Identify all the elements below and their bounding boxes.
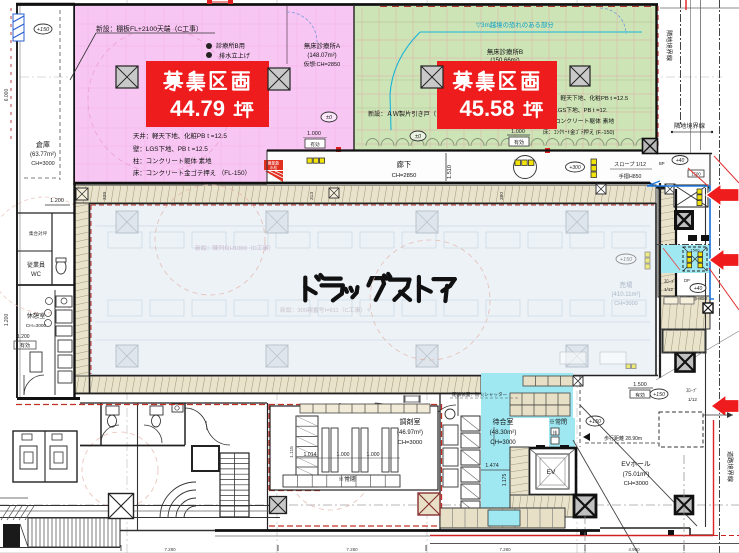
svg-text:+300: +300 [569,165,580,171]
svg-text:天井：軽天下地、化粧PB t =12.5: 天井：軽天下地、化粧PB t =12.5 [133,131,227,140]
svg-text:CH=2850: CH=2850 [392,173,417,179]
svg-text:1.000: 1.000 [367,452,380,458]
svg-text:新設：300親番号I=911（C工事）＋: 新設：300親番号I=911（C工事）＋ [280,306,372,314]
svg-text:DP: DP [684,278,690,283]
svg-text:休憩室: 休憩室 [27,312,46,320]
svg-text:調剤室: 調剤室 [400,417,421,426]
svg-text:+150: +150 [37,27,50,33]
svg-text:ｽﾛｰﾌﾟ: ｽﾛｰﾌﾟ [664,278,676,285]
svg-text:(48.30m²): (48.30m²) [490,429,517,436]
svg-text:有効: 有効 [20,342,30,349]
svg-text:7.280: 7.280 [499,547,511,552]
svg-text:1/12: 1/12 [688,397,697,402]
svg-text:CH=3000: CH=3000 [26,323,47,329]
svg-text:+150: +150 [653,392,665,398]
svg-text:1.014: 1.014 [304,452,317,458]
svg-text:1.200: 1.200 [4,314,10,327]
svg-text:1.510: 1.510 [447,165,453,179]
svg-text:339: 339 [102,192,108,200]
svg-text:無床診療所B: 無床診療所B [487,47,523,56]
svg-text:機能散: 機能散 [268,161,280,166]
svg-text:従業員: 従業員 [27,261,45,269]
svg-text:WC: WC [31,272,42,278]
svg-text:有効: 有効 [635,392,645,399]
svg-text:待合室: 待合室 [493,417,514,426]
svg-text:CH=3000: CH=3000 [624,481,649,487]
svg-text:7.280: 7.280 [164,547,176,552]
svg-text:380: 380 [499,192,505,200]
svg-text:±0: ±0 [326,115,333,121]
svg-text:床：ｺﾝｸﾘｰﾄ金ｺﾞﾃ押え (F.-150): 床：ｺﾝｸﾘｰﾄ金ｺﾞﾃ押え (F.-150) [543,128,614,136]
svg-text:集合対坪: 集合対坪 [29,230,47,237]
svg-text:床：コンクリート金ゴテ押え （FL-150）: 床：コンクリート金ゴテ押え （FL-150） [133,168,251,177]
svg-text:新設：棚板FL+2100天端（C工事）: 新設：棚板FL+2100天端（C工事） [96,24,203,33]
svg-text:+150: +150 [620,257,633,263]
svg-text:EVホール: EVホール [621,460,651,468]
svg-text:仮想:CH=2850: 仮想:CH=2850 [304,60,341,68]
svg-text:診療所B用: 診療所B用 [216,42,245,50]
svg-text:倉庫: 倉庫 [36,140,50,149]
svg-text:売場: 売場 [620,280,634,289]
svg-text:1.175: 1.175 [502,474,508,487]
svg-text:閉鎖装置：防火シャッター: 閉鎖装置：防火シャッター [452,391,508,398]
svg-text:排水立上げ: 排水立上げ [219,52,251,60]
svg-text:スロープ 1/12: スロープ 1/12 [614,161,646,168]
svg-text:※常閉: ※常閉 [549,418,567,426]
svg-text:±0: ±0 [415,134,422,140]
svg-text:+40: +40 [676,158,685,164]
svg-text:新設：陳列台H1000（C工事）: 新設：陳列台H1000（C工事） [195,244,274,252]
svg-text:(410.11m²): (410.11m²) [612,292,641,298]
svg-text:1.200: 1.200 [50,198,64,204]
svg-text:1.000: 1.000 [307,131,321,137]
svg-text:(63.77m²): (63.77m²) [30,152,56,158]
svg-text:手摺H850: 手摺H850 [619,172,642,180]
svg-text:BP: BP [659,161,665,166]
svg-text:1.500: 1.500 [633,382,647,388]
svg-text:有効: 有効 [514,139,524,146]
svg-text:CH=3000: CH=3000 [614,301,637,307]
svg-text:CH=3000: CH=3000 [398,440,423,446]
svg-text:柱：コンクリート躯体 素地: 柱：コンクリート躯体 素地 [133,156,212,165]
svg-text:1.000: 1.000 [511,129,525,135]
svg-text:CH=3000: CH=3000 [31,161,54,167]
svg-text:+40: +40 [694,286,703,292]
svg-text:44.79: 44.79 [170,96,225,121]
svg-text:4.900: 4.900 [628,547,640,552]
svg-text:6.000: 6.000 [4,89,10,102]
svg-text:▽3m越境の恐れのある部分: ▽3m越境の恐れのある部分 [476,20,554,29]
svg-text:有効: 有効 [310,141,320,148]
svg-text:7.280: 7.280 [346,547,358,552]
svg-text:1.474: 1.474 [485,463,499,469]
svg-text:水栓: 水栓 [270,165,278,170]
svg-text:道路境界線: 道路境界線 [726,451,734,482]
svg-text:排: 排 [553,429,557,435]
svg-text:廊下: 廊下 [397,160,411,169]
svg-text:1.115: 1.115 [289,446,295,458]
svg-text:隣地境界線: 隣地境界線 [674,122,705,130]
svg-text:45.58: 45.58 [459,96,514,121]
svg-text:1.200: 1.200 [17,334,30,340]
svg-text:※常閉: ※常閉 [338,475,356,483]
svg-text:EV: EV [547,469,556,476]
svg-text:隣地境界線: 隣地境界線 [665,30,673,61]
svg-text:313: 313 [309,192,315,200]
svg-text:(148.07m²): (148.07m²) [307,53,336,59]
svg-text:(46.97m²): (46.97m²) [397,430,423,436]
svg-text:1.000: 1.000 [337,452,350,458]
svg-text:無床診療所A: 無床診療所A [304,41,341,50]
svg-text:+150: +150 [589,419,601,425]
svg-text:壁：LGS下地、PB t =12.5: 壁：LGS下地、PB t =12.5 [133,144,208,153]
svg-text:ｽﾛｰﾌﾟ: ｽﾛｰﾌﾟ [686,387,698,394]
svg-text:1/12: 1/12 [664,287,673,292]
